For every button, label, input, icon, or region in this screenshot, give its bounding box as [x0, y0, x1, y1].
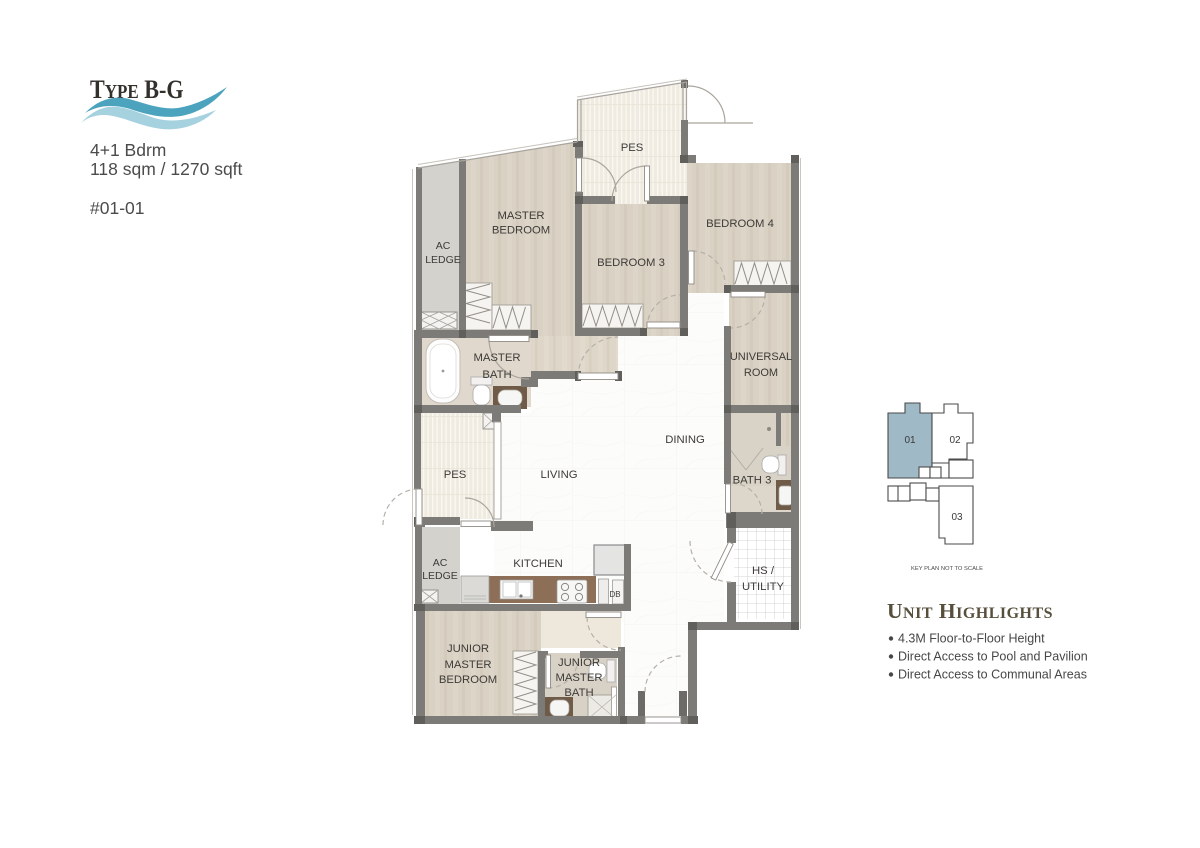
svg-text:Direct Access to Pool and Pavi: Direct Access to Pool and Pavilion: [898, 650, 1088, 664]
svg-text:BEDROOM 4: BEDROOM 4: [706, 218, 774, 230]
svg-text:02: 02: [949, 435, 961, 446]
svg-text:HS /: HS /: [752, 565, 775, 577]
svg-text:BEDROOM: BEDROOM: [492, 225, 550, 237]
svg-text:#01-01: #01-01: [90, 198, 145, 218]
svg-text:DINING: DINING: [665, 434, 705, 446]
svg-text:4.3M Floor-to-Floor Height: 4.3M Floor-to-Floor Height: [898, 632, 1045, 646]
svg-text:Direct Access to Communal Area: Direct Access to Communal Areas: [898, 668, 1087, 682]
svg-text:BATH 3: BATH 3: [733, 475, 772, 487]
svg-text:UNIVERSAL: UNIVERSAL: [730, 351, 792, 363]
svg-text:BATH: BATH: [482, 369, 511, 381]
svg-text:JUNIOR: JUNIOR: [558, 657, 600, 669]
svg-text:KITCHEN: KITCHEN: [513, 558, 563, 570]
svg-text:MASTER: MASTER: [444, 659, 491, 671]
svg-text:LIVING: LIVING: [540, 469, 577, 481]
svg-text:03: 03: [951, 512, 963, 523]
svg-text:BEDROOM: BEDROOM: [439, 674, 497, 686]
svg-text:AC: AC: [436, 240, 451, 252]
svg-text:LEDGE: LEDGE: [425, 254, 461, 266]
svg-text:4+1 Bdrm: 4+1 Bdrm: [90, 140, 166, 160]
svg-text:BATH: BATH: [564, 687, 593, 699]
svg-text:ROOM: ROOM: [744, 367, 778, 379]
svg-text:MASTER: MASTER: [497, 210, 544, 222]
svg-text:MASTER: MASTER: [473, 352, 520, 364]
svg-text:BEDROOM 3: BEDROOM 3: [597, 257, 665, 269]
svg-text:MASTER: MASTER: [555, 672, 602, 684]
svg-text:UNIT HIGHLIGHTS: UNIT HIGHLIGHTS: [887, 599, 1053, 623]
svg-text:PES: PES: [621, 142, 644, 154]
svg-text:118 sqm / 1270 sqft: 118 sqm / 1270 sqft: [90, 159, 243, 179]
svg-text:PES: PES: [444, 469, 467, 481]
svg-text:01: 01: [904, 435, 916, 446]
svg-text:DB: DB: [609, 590, 620, 599]
svg-text:LEDGE: LEDGE: [422, 570, 458, 582]
svg-text:KEY PLAN NOT TO SCALE: KEY PLAN NOT TO SCALE: [911, 566, 983, 572]
svg-text:UTILITY: UTILITY: [742, 581, 785, 593]
svg-text:JUNIOR: JUNIOR: [447, 643, 489, 655]
svg-text:AC: AC: [433, 557, 448, 569]
